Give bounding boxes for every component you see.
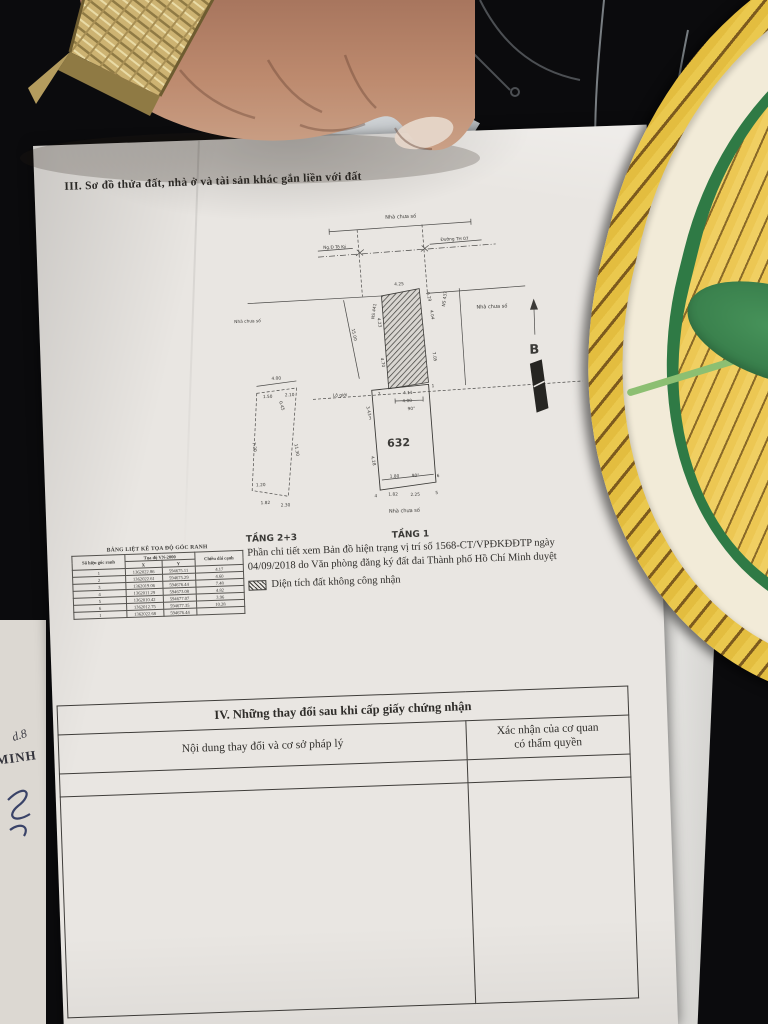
- dim: 3.43: [364, 406, 372, 417]
- photo-of-land-certificate: { "scene": { "background_color": "#0b0b0…: [0, 0, 768, 1024]
- section4-empty-row: [60, 777, 638, 1018]
- hand-holding-paper: [0, 0, 768, 220]
- label-floor1: TẦNG 1: [392, 526, 430, 540]
- dim: 7.20: [251, 442, 258, 453]
- dim: 7.05: [430, 351, 438, 362]
- label-house-left: Nhà chưa số: [234, 317, 261, 325]
- dim: 1.50: [263, 394, 273, 400]
- cadastral-diagram: Nhà chưa số Ng.Đ Tô Ký Đường TH 07 Nhà c…: [220, 198, 612, 561]
- dim: 1.20: [256, 482, 266, 488]
- dim: 4.28: [369, 456, 377, 467]
- dim: 4.00: [402, 398, 412, 404]
- dim: 4.04: [428, 310, 436, 321]
- dim: 90°: [407, 406, 415, 412]
- label-house-bottom: Nhà chưa số: [389, 507, 420, 515]
- dim: 1.80: [390, 473, 400, 479]
- signature-mark: [0, 780, 46, 850]
- vertex: 4: [374, 493, 377, 499]
- hatched-parcel: [381, 288, 428, 388]
- section4-table: IV. Những thay đổi sau khi cấp giấy chứn…: [57, 686, 640, 1019]
- dim: 1.82: [261, 500, 271, 506]
- vertex: 1: [432, 383, 435, 389]
- certificate-page: III. Sơ đồ thửa đất, nhà ở và tài sản kh…: [33, 125, 678, 1024]
- vertex: 6: [437, 473, 440, 479]
- dim: 0.45: [277, 400, 286, 411]
- under-page-text: d.8: [10, 726, 29, 745]
- coordinates-table: BẢNG LIỆT KÊ TỌA ĐỘ GÓC RANH Số hiệu góc…: [71, 543, 245, 620]
- dim: 1.82: [388, 491, 398, 497]
- label-floors23: TẦNG 2+3: [246, 530, 298, 545]
- dim: 4.25: [394, 281, 404, 287]
- under-page-text: MINH: [0, 747, 38, 769]
- label-lo-gioi: Lộ giới: [333, 391, 347, 398]
- dim: 2.30: [281, 502, 291, 508]
- vertex: 3: [369, 415, 372, 421]
- dim: 90°: [412, 473, 420, 479]
- label-ns-left: NS 441: [370, 303, 378, 319]
- dim: 2.25: [410, 492, 420, 498]
- dim: 11.30: [293, 443, 301, 456]
- plot-number: 632: [387, 436, 410, 450]
- label-house-right: Nhà chưa số: [476, 303, 507, 311]
- under-page: d.8 MINH: [0, 620, 46, 1024]
- legend-text: Diện tích đất không công nhận: [271, 574, 401, 593]
- dim: 4.70: [379, 357, 387, 368]
- north-arrow-label: B: [529, 342, 539, 357]
- vertex: 5: [435, 490, 438, 496]
- dim: 4.00: [271, 375, 281, 381]
- north-bar: [530, 359, 549, 413]
- vertex: 2: [378, 391, 381, 397]
- dim: 2.10: [285, 392, 295, 398]
- dim-15: 15.00: [350, 328, 358, 342]
- dim: 4.23: [375, 317, 383, 328]
- section4-col-right: Xác nhận của cơ quan có thẩm quyền: [466, 715, 630, 760]
- label-ns-right: NS 437: [441, 291, 449, 307]
- hatch-legend-swatch: [248, 581, 266, 592]
